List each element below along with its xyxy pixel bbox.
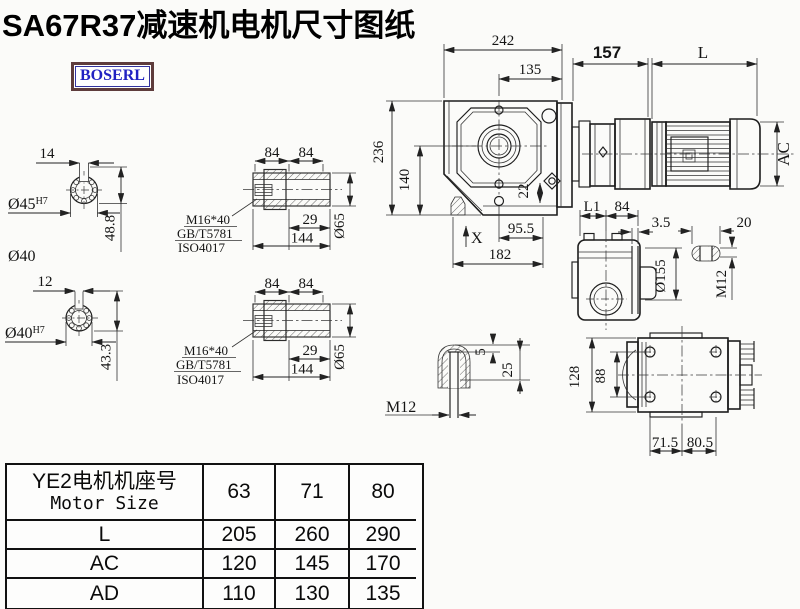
- table-cell-AD-71: 130: [276, 579, 350, 608]
- dim-29-2: 29: [303, 343, 318, 359]
- hollow-shaft-view-2: 84 84 M16*40 GB/T5781 ISO4017 29 144 Ø65: [174, 276, 356, 387]
- dim-35: 3.5: [652, 215, 671, 231]
- table-header-motor-size: YE2电机机座号 Motor Size: [7, 465, 204, 521]
- dim-dia-45-fit: H7: [36, 196, 48, 207]
- dim-L1: L1: [584, 199, 601, 215]
- dim-22: 22: [516, 184, 532, 199]
- label-bolt-2: M16*40: [184, 343, 228, 358]
- dim-AC: AC: [774, 142, 793, 166]
- shaft-end-detail: 5 25 M12: [385, 334, 530, 418]
- shaft-section-45: 14 Ø45H7 48.8 Ø40: [8, 146, 127, 265]
- hollow-shaft-view-1: 84 84 M16*40 GB/T5781 ISO4017 29 144 Ø65: [175, 145, 356, 255]
- brand-logo-frame: BOSERL: [75, 66, 150, 87]
- dim-height-488: 48.8: [103, 215, 119, 241]
- dim-M12-detail: M12: [386, 399, 416, 416]
- table-cell-AC-63: 120: [204, 550, 276, 579]
- dim-dia65-1: Ø65: [332, 213, 348, 239]
- dim-157: 157: [593, 43, 621, 62]
- dim-dia-40-fit: H7: [33, 325, 45, 336]
- dim-L: L: [698, 43, 708, 62]
- dim-135: 135: [519, 62, 542, 78]
- table-cell-AC-71: 145: [276, 550, 350, 579]
- dim-715: 71.5: [652, 435, 678, 451]
- table-row-AC-label: AC: [7, 550, 204, 579]
- label-std2-2: ISO4017: [177, 372, 224, 387]
- label-std2-1: ISO4017: [178, 240, 225, 255]
- table-cell-AD-63: 110: [204, 579, 276, 608]
- dim-dia-40: Ø40H7: [5, 325, 45, 342]
- shaft-section-40: 12 Ø40H7 43.3: [5, 274, 123, 381]
- dim-805: 80.5: [687, 435, 713, 451]
- label-std1-2: GB/T5781: [176, 357, 232, 372]
- table-cell-AC-80: 170: [350, 550, 416, 579]
- dim-84a-2: 84: [265, 276, 281, 292]
- label-x: X: [471, 230, 483, 247]
- table-col-80: 80: [350, 465, 416, 521]
- dim-144-2: 144: [291, 362, 314, 378]
- brand-logo: BOSERL: [71, 62, 154, 91]
- dim-84a-1: 84: [265, 145, 281, 161]
- table-row-L-label: L: [7, 521, 204, 550]
- bottom-view: 128 88 71.5 80.5: [567, 326, 762, 456]
- dim-height-433: 43.3: [99, 344, 115, 370]
- dim-20: 20: [737, 215, 752, 231]
- table-col-63: 63: [204, 465, 276, 521]
- table-col-71: 71: [276, 465, 350, 521]
- front-view: 242 135 157 L 236 140 22 95.5: [371, 33, 795, 268]
- dim-dia-45: Ø45H7: [8, 196, 48, 213]
- dim-955: 95.5: [508, 221, 534, 237]
- dim-84-side: 84: [615, 199, 631, 215]
- dim-88: 88: [593, 369, 609, 384]
- side-view: L1 84 3.5 Ø155 20: [572, 199, 752, 330]
- dim-dia65-2: Ø65: [332, 344, 348, 370]
- dim-84b-1: 84: [299, 145, 315, 161]
- table-header-cn: YE2电机机座号: [32, 470, 177, 494]
- table-cell-L-71: 260: [276, 521, 350, 550]
- dim-dia155: Ø155: [653, 259, 669, 292]
- table-header-en: Motor Size: [50, 494, 158, 514]
- motor-size-table: YE2电机机座号 Motor Size 63 71 80 L 205 260 2…: [5, 463, 424, 609]
- dim-25: 25: [500, 363, 516, 378]
- dim-dia-40-value: Ø40: [5, 325, 33, 342]
- page-title: SA67R37减速机电机尺寸图纸: [2, 0, 415, 45]
- dim-140: 140: [397, 169, 413, 192]
- dim-dia-45-value: Ø45: [8, 196, 36, 213]
- drawing-sheet: SA67R37减速机电机尺寸图纸 BOSERL: [0, 0, 800, 609]
- brand-logo-text: BOSERL: [80, 67, 145, 84]
- dim-key-width-40: 12: [38, 274, 53, 290]
- dim-5: 5: [473, 348, 489, 356]
- table-cell-L-80: 290: [350, 521, 416, 550]
- dim-29-1: 29: [303, 212, 318, 228]
- table-cell-L-63: 205: [204, 521, 276, 550]
- label-std1-1: GB/T5781: [177, 226, 233, 241]
- label-bolt-1: M16*40: [186, 212, 230, 227]
- dim-236: 236: [371, 140, 387, 163]
- dim-key-width-45: 14: [40, 146, 56, 162]
- table-cell-AD-80: 135: [350, 579, 416, 608]
- dim-128: 128: [567, 366, 583, 389]
- motor-fins: [667, 126, 729, 180]
- dim-242: 242: [492, 33, 515, 49]
- dim-144-1: 144: [291, 231, 314, 247]
- dim-84b-2: 84: [299, 276, 315, 292]
- dim-M12-side: M12: [714, 270, 730, 298]
- table-row-AD-label: AD: [7, 579, 204, 608]
- label-dia-40: Ø40: [8, 248, 36, 265]
- dim-182: 182: [489, 247, 512, 263]
